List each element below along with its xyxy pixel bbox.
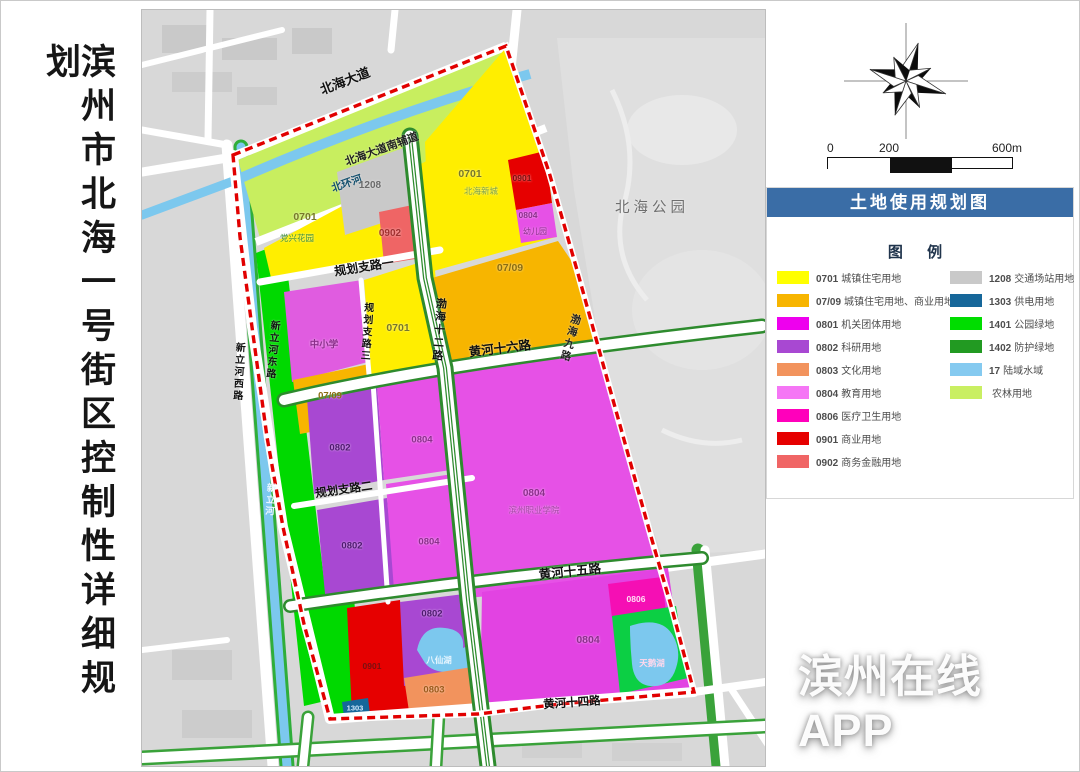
scale-bar: 0 200 600m <box>827 141 1013 169</box>
zone-label-0804-college: 0804 <box>523 489 545 499</box>
zone-label-0901-a: 0901 <box>513 174 532 183</box>
legend-caption: 图 例 <box>767 241 1073 262</box>
lake-label-swan: 天鹅湖 <box>639 659 665 668</box>
map-panel: 北海大道 北环河 北海大道南辅道 规划支路一 0701 党兴花园 1208 09… <box>141 9 766 767</box>
legend-swatch <box>777 340 809 353</box>
zone-label-0701-c: 0701 <box>386 323 409 334</box>
zone-label-1208: 1208 <box>359 181 381 191</box>
legend-item: 0901商业用地 <box>777 431 954 445</box>
zone-label-0804-kg: 0804 <box>519 211 538 220</box>
zone-label-0802-b: 0802 <box>341 541 362 551</box>
zone-label-0804-a: 0804 <box>411 435 432 445</box>
zone-label-0804-c: 0804 <box>576 635 599 646</box>
legend-swatch <box>777 363 809 376</box>
zone-label-school: 中小学 <box>310 340 339 350</box>
watermark: 滨州在线APP <box>798 693 1073 763</box>
zone-label-0901-b: 0901 <box>363 662 382 671</box>
legend-item: 0802科研用地 <box>777 339 954 353</box>
legend-item: 0806医疗卫生用地 <box>777 408 954 422</box>
legend-column-right: 1208交通场站用地 1303供电用地 1401公园绿地 1402防护绿地 17… <box>950 270 1074 408</box>
zone-label-1303: 1303 <box>347 704 364 712</box>
legend-item: 1303供电用地 <box>950 293 1074 307</box>
river-label-xinli: 新立河 <box>263 482 275 517</box>
zone-label-college-name: 滨州职业学院 <box>508 506 559 515</box>
landmark-label-beihai-park: 北海公园 <box>615 201 689 216</box>
zone-label-0806: 0806 <box>627 595 646 604</box>
legend-item: 0801机关团体用地 <box>777 316 954 330</box>
zone-label-0804-b: 0804 <box>418 537 439 547</box>
legend-swatch <box>777 409 809 422</box>
legend-item: 1208交通场站用地 <box>950 270 1074 284</box>
legend-swatch <box>777 386 809 399</box>
zone-label-0709-a: 07/09 <box>497 263 523 274</box>
legend-swatch <box>950 386 982 399</box>
zone-label-0802-c: 0802 <box>421 609 442 619</box>
legend-swatch <box>950 271 982 284</box>
lake-label-baxian: 八仙湖 <box>426 656 452 665</box>
scale-tick-200: 200 <box>879 141 899 155</box>
legend-item: 0701城镇住宅用地 <box>777 270 954 284</box>
zone-label-0709-b: 07/09 <box>318 391 342 401</box>
compass-rose <box>839 19 973 143</box>
watermark-text: 滨州在线APP <box>798 640 1069 757</box>
zone-label-kindergarten: 幼儿园 <box>523 228 547 236</box>
legend-swatch <box>950 363 982 376</box>
legend-item: 0803文化用地 <box>777 362 954 376</box>
legend-item: 农林用地 <box>950 385 1074 399</box>
scale-ticks: 0 200 600m <box>827 141 1013 155</box>
page-title: 滨州市北海一号街区控制性详细规划 <box>43 43 113 743</box>
zone-label-0701-b: 0701 <box>458 169 481 180</box>
legend-item: 07/09城镇住宅用地、商业用地 <box>777 293 954 307</box>
legend-swatch <box>777 271 809 284</box>
legend-swatch <box>950 340 982 353</box>
zone-label-0701-a: 0701 <box>293 212 316 223</box>
legend-panel: 土地使用规划图 图 例 0701城镇住宅用地 07/09城镇住宅用地、商业用地 … <box>766 187 1074 499</box>
scale-tick-0: 0 <box>827 141 834 155</box>
legend-title: 土地使用规划图 <box>767 188 1073 217</box>
zone-label-beihaixincheng: 北海新城 <box>464 187 498 196</box>
scale-tick-600: 600m <box>992 141 1022 155</box>
legend-swatch <box>950 294 982 307</box>
legend-swatch <box>777 455 809 468</box>
legend-item: 17陆域水域 <box>950 362 1074 376</box>
zone-label-dangxing: 党兴花园 <box>280 234 314 243</box>
legend-swatch <box>950 317 982 330</box>
legend-swatch <box>777 317 809 330</box>
legend-item: 0804教育用地 <box>777 385 954 399</box>
compass-petals <box>859 31 959 128</box>
road-label-xinli-west: 新立河西路 <box>230 342 243 402</box>
zone-label-0803: 0803 <box>423 685 444 695</box>
legend-column-left: 0701城镇住宅用地 07/09城镇住宅用地、商业用地 0801机关团体用地 0… <box>777 270 954 477</box>
legend-swatch <box>777 432 809 445</box>
zone-label-0902: 0902 <box>379 229 401 239</box>
zone-label-0802-a: 0802 <box>329 443 350 453</box>
legend-item: 1401公园绿地 <box>950 316 1074 330</box>
legend-item: 1402防护绿地 <box>950 339 1074 353</box>
page-root: 滨州市北海一号街区控制性详细规划 <box>0 0 1080 772</box>
scale-bar-segments <box>827 157 1013 169</box>
legend-item: 0902商务金融用地 <box>777 454 954 468</box>
zone-0901-b <box>347 600 410 716</box>
legend-swatch <box>777 294 809 307</box>
